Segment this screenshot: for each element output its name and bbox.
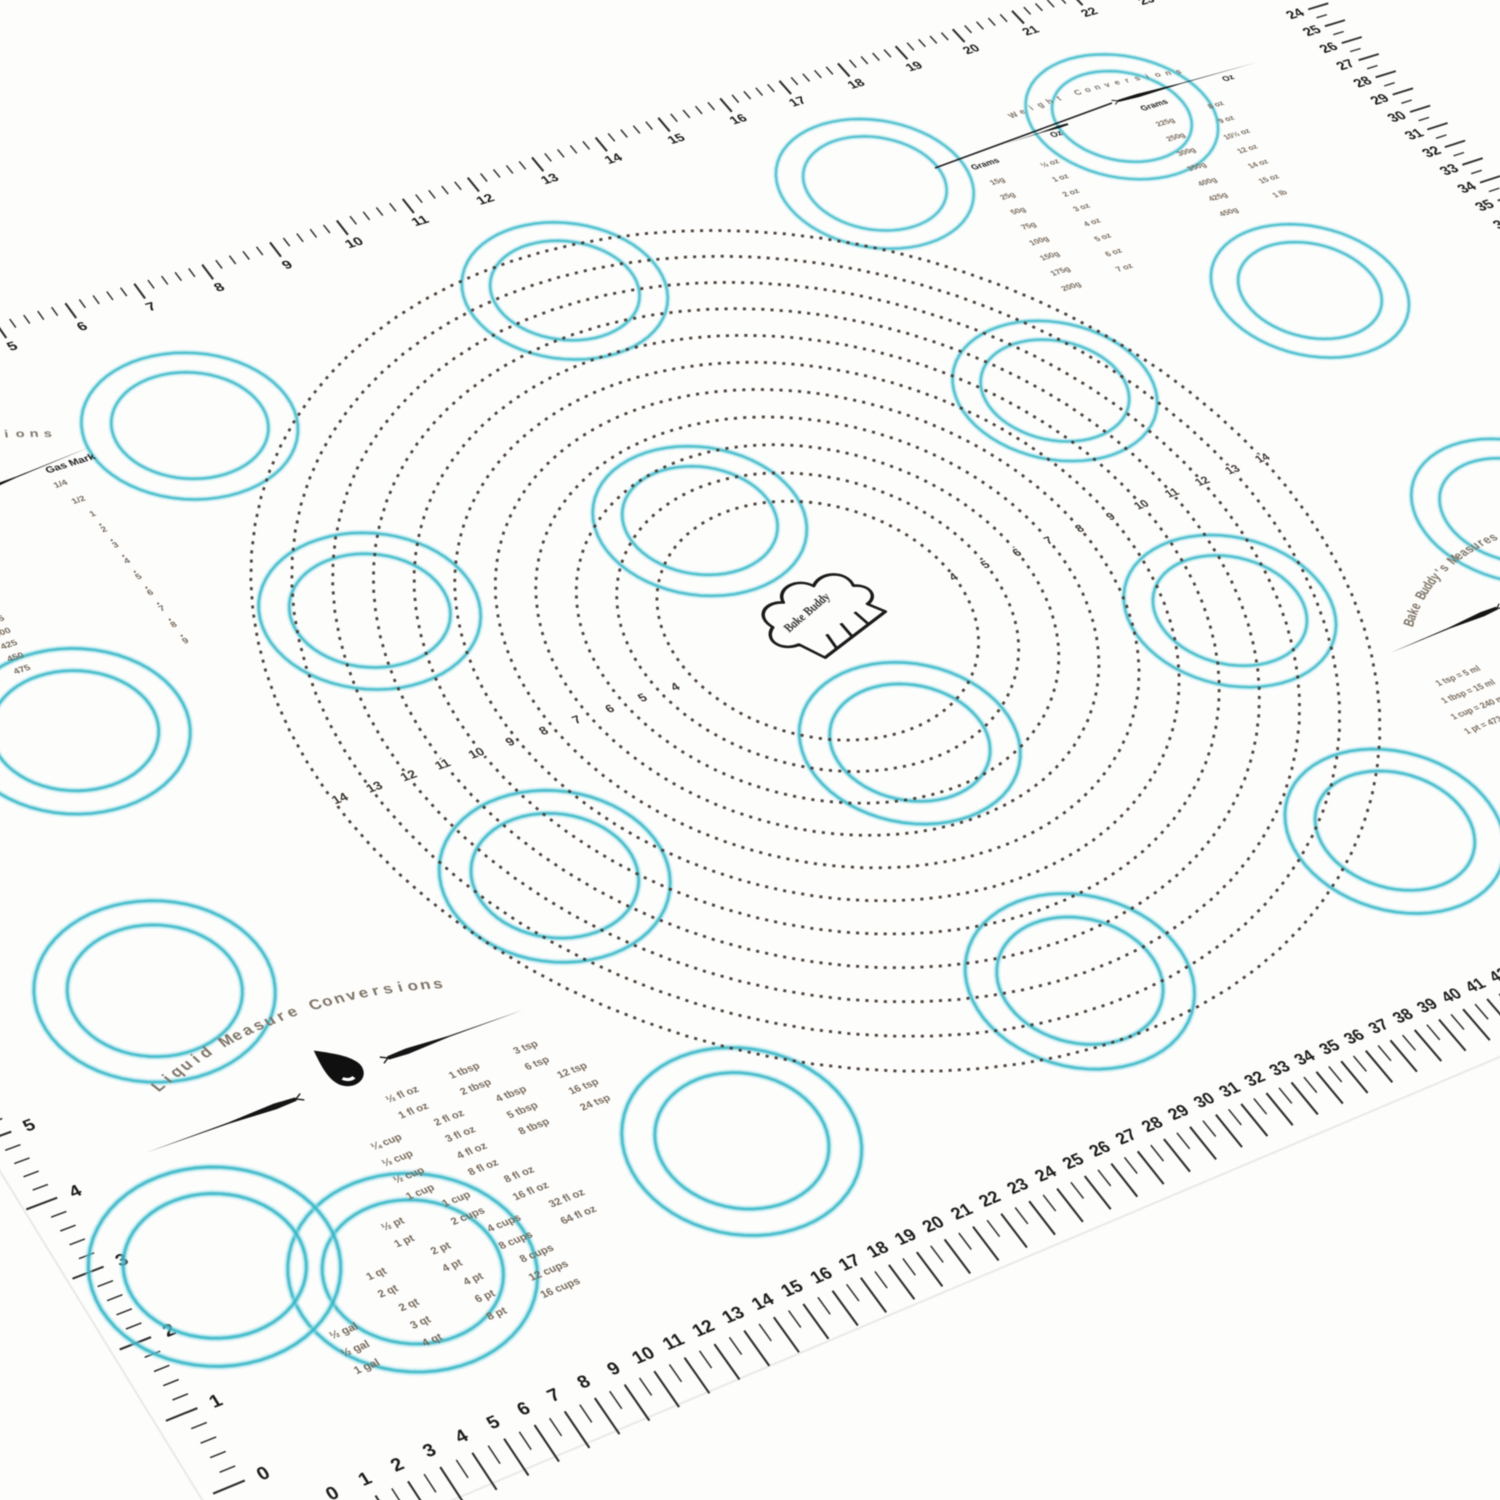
svg-text:n: n [29, 428, 39, 439]
svg-text:o: o [15, 428, 26, 440]
svg-text:s: s [43, 428, 52, 440]
